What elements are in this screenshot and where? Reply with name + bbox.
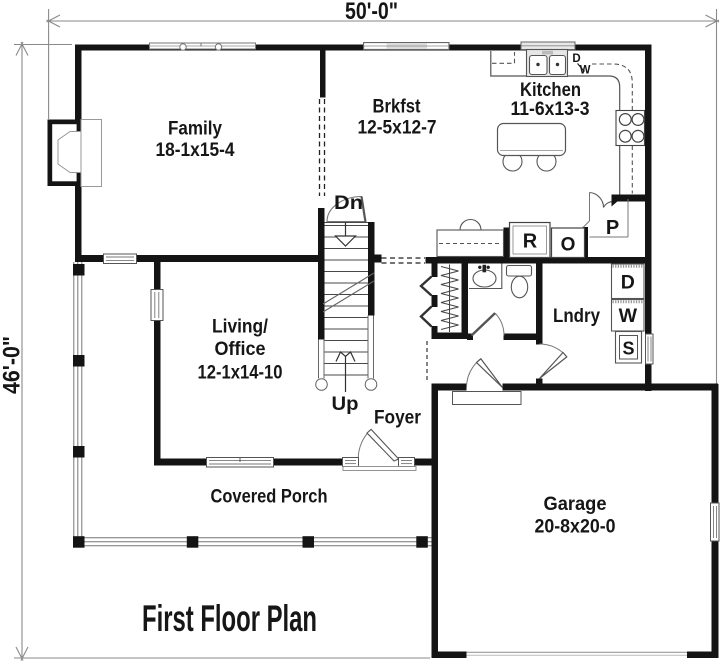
svg-text:W: W <box>619 305 638 327</box>
svg-text:Garage: Garage <box>544 493 607 515</box>
svg-text:P: P <box>606 217 619 239</box>
svg-text:12-5x12-7: 12-5x12-7 <box>358 117 437 139</box>
svg-text:Lndry: Lndry <box>553 305 600 327</box>
svg-text:Office: Office <box>215 338 266 360</box>
svg-text:20-8x20-0: 20-8x20-0 <box>535 516 616 538</box>
svg-text:Foyer: Foyer <box>374 407 421 429</box>
svg-text:Covered Porch: Covered Porch <box>211 486 328 508</box>
svg-text:46'-0": 46'-0" <box>0 336 26 394</box>
svg-text:R: R <box>523 231 538 253</box>
svg-text:O: O <box>561 235 576 256</box>
svg-text:S: S <box>622 339 634 359</box>
svg-text:Up: Up <box>332 393 359 415</box>
svg-text:50'-0": 50'-0" <box>345 0 398 25</box>
svg-text:Living/: Living/ <box>212 316 269 338</box>
svg-text:D: D <box>621 272 635 294</box>
svg-text:First Floor Plan: First Floor Plan <box>142 598 317 639</box>
svg-text:Brkfst: Brkfst <box>373 96 421 118</box>
svg-text:18-1x15-4: 18-1x15-4 <box>156 139 235 161</box>
svg-text:Dn: Dn <box>334 192 363 214</box>
svg-text:12-1x14-10: 12-1x14-10 <box>198 362 283 384</box>
svg-text:11-6x13-3: 11-6x13-3 <box>511 98 590 120</box>
svg-text:D: D <box>572 53 580 65</box>
svg-text:Family: Family <box>168 118 222 140</box>
svg-text:W: W <box>580 65 591 77</box>
